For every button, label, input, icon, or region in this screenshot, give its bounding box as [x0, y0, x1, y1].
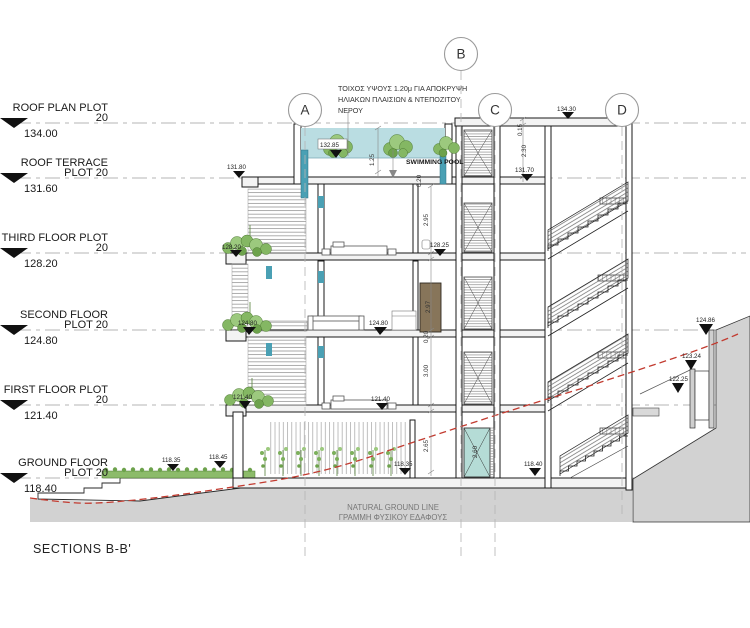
spot-elevation: 132.85	[320, 142, 339, 149]
level-elevation: 134.00	[24, 128, 58, 140]
wall-height-note: ΝΕΡΟΥ	[338, 106, 363, 115]
retaining-wall-left	[690, 369, 695, 428]
level-label: PLOT 20	[64, 467, 108, 479]
grid-letter: C	[490, 103, 500, 118]
spot-elevation: 121.40	[233, 394, 252, 401]
counter-second-floor	[392, 311, 416, 330]
interior-wall-third	[413, 184, 418, 253]
level-label: 20	[96, 394, 108, 406]
grid-bubble-a: A	[289, 94, 322, 127]
interior-wall-ground	[410, 420, 415, 478]
grid-letter: A	[300, 103, 309, 118]
grid-bubble-d: D	[606, 94, 639, 127]
level-label: PLOT 20	[64, 167, 108, 179]
dimension-text: 2.60	[472, 445, 479, 458]
level-label: 20	[96, 112, 108, 124]
spot-elevation: 124.80	[238, 320, 257, 327]
dimension-text: 2.65	[423, 439, 430, 452]
natural-ground-line-label-gr: ΓΡΑΜΜΗ ΦΥΣΙΚΟΥ ΕΔΑΦΟΥΣ	[339, 513, 448, 522]
pool-wall-left	[294, 124, 301, 184]
ground-column	[233, 412, 243, 478]
spot-level: 134.30	[557, 106, 576, 119]
sofa-second-floor	[308, 316, 364, 330]
spot-elevation: 128.25	[430, 242, 449, 249]
level-row: FIRST FLOOR PLOT 20 121.40	[0, 384, 108, 422]
retaining-channel	[695, 371, 709, 420]
section-drawing: A B C D ROOF PLAN PLOT 20 134.00	[0, 0, 750, 628]
wall-height-note: ΗΛΙΑΚΩΝ ΠΛΑΙΣΙΩΝ & ΝΤΕΠΟΖΙΤΟΥ	[338, 95, 461, 104]
staircase	[545, 118, 632, 490]
dimension-text: 2.95	[423, 213, 430, 226]
wall-height-note: ΤΟΙΧΟΣ ΥΨΟΥΣ 1.20μ ΓΙΑ ΑΠΟΚΡΥΨΗ	[338, 84, 467, 93]
level-row: ROOF TERRACE PLOT 20 131.60	[0, 157, 108, 195]
spot-level: 118.45	[209, 454, 228, 468]
spot-elevation: 123.24	[682, 353, 701, 360]
window-glass-icon	[318, 271, 324, 283]
level-label: FIRST FLOOR PLOT	[4, 384, 109, 396]
dimension-text: 1.25	[369, 153, 376, 166]
glass-rail-accent	[266, 266, 272, 279]
spot-elevation: 134.30	[557, 106, 576, 113]
dimension-text: 2.97	[425, 300, 432, 313]
spot-elevation: 118.45	[209, 454, 228, 461]
dimension-text: 2.30	[521, 144, 528, 157]
level-elevation: 121.40	[24, 410, 58, 422]
level-elevation: 118.40	[24, 483, 57, 495]
dimension-text: 0.15	[517, 123, 524, 136]
natural-ground-line-label-en: NATURAL GROUND LINE	[347, 503, 439, 512]
level-row: SECOND FLOOR PLOT 20 124.80	[0, 309, 108, 347]
drawing-title: SECTIONS B-B'	[33, 542, 131, 556]
toilet-third-floor	[422, 240, 430, 249]
window-glass-icon	[318, 196, 324, 208]
spot-level: 131.80	[227, 164, 246, 178]
level-label: THIRD FLOOR PLOT	[2, 232, 109, 244]
level-elevation: 128.20	[24, 258, 58, 270]
grid-bubble-b: B	[445, 38, 478, 71]
level-label: PLOT 20	[64, 319, 108, 331]
level-elevation: 131.60	[24, 183, 58, 195]
dimension-text: 3.00	[423, 364, 430, 377]
spot-elevation: 118.35	[162, 457, 181, 464]
facade-wall-third	[318, 184, 324, 253]
spot-elevation: 122.25	[669, 376, 688, 383]
ground-floor-slab	[233, 478, 632, 488]
glass-rail-accent	[266, 343, 272, 356]
level-label: 20	[96, 242, 108, 254]
grid-letter: D	[617, 103, 627, 118]
level-elevation: 124.80	[24, 335, 58, 347]
spot-level: 122.25	[669, 376, 688, 393]
section-drawing-page: A B C D ROOF PLAN PLOT 20 134.00	[0, 0, 750, 628]
spot-level: 118.40	[524, 461, 543, 476]
dimension-text: 0.20	[423, 330, 430, 343]
spot-elevation: 131.70	[515, 167, 534, 174]
window-glass-icon	[318, 346, 324, 358]
spot-level: 123.24	[682, 353, 701, 370]
grid-bubble-c: C	[479, 94, 512, 127]
grid-letter: B	[456, 47, 465, 62]
spot-elevation: 124.86	[696, 317, 715, 324]
dimension-text: 0.20	[416, 174, 423, 187]
spot-elevation: 124.80	[369, 320, 388, 327]
stair-wall-outer	[626, 118, 632, 490]
landing-slab-131-70	[494, 177, 551, 184]
spot-elevation: 118.40	[524, 461, 543, 468]
spot-elevation: 131.80	[227, 164, 246, 171]
level-label: ROOF PLAN PLOT	[13, 102, 109, 114]
level-row: ROOF PLAN PLOT 20 134.00	[0, 102, 108, 140]
bed-third-floor	[322, 242, 396, 255]
interior-wall-first	[413, 337, 418, 405]
swimming-pool-label: SWIMMING POOL	[406, 159, 463, 166]
spot-elevation: 121.40	[371, 396, 390, 403]
level-markers: ROOF PLAN PLOT 20 134.00 ROOF TERRACE PL…	[0, 102, 108, 495]
level-row: THIRD FLOOR PLOT 20 128.20	[0, 232, 108, 270]
terrain	[30, 316, 750, 522]
pool-glass-left	[301, 150, 308, 198]
spot-elevation: 128.20	[222, 244, 241, 251]
spot-elevation: 118.35	[394, 461, 413, 468]
